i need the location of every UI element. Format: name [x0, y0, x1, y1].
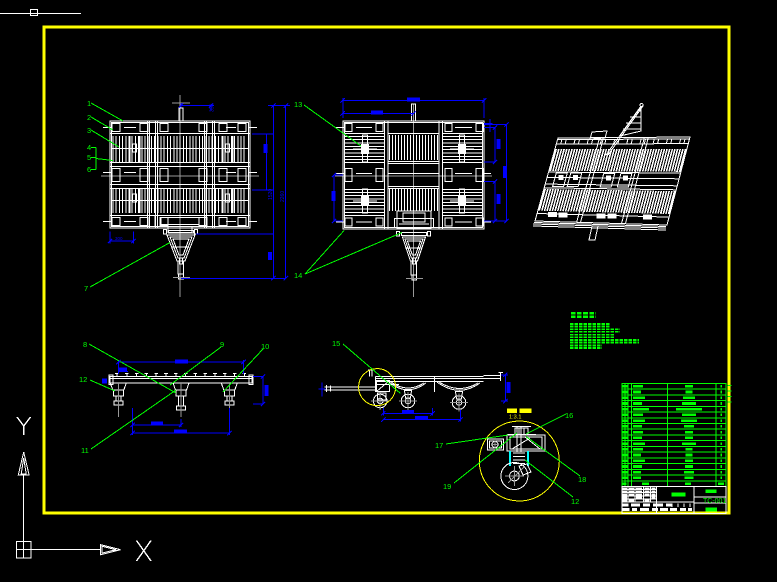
- svg-text:300: 300: [115, 236, 123, 241]
- svg-text:12: 12: [571, 497, 579, 506]
- svg-text:3: 3: [87, 126, 91, 135]
- svg-text:14: 14: [294, 271, 302, 280]
- svg-text:7: 7: [84, 284, 88, 293]
- svg-text:19: 19: [443, 482, 451, 491]
- svg-text:13: 13: [294, 100, 302, 109]
- svg-text:1:3.1: 1:3.1: [509, 414, 521, 420]
- svg-text:350: 350: [210, 103, 216, 112]
- svg-text:TC-001: TC-001: [703, 498, 726, 505]
- svg-text:5: 5: [87, 153, 91, 162]
- svg-text:1: 1: [87, 99, 91, 108]
- svg-text:12: 12: [79, 375, 87, 384]
- svg-text:8: 8: [83, 340, 87, 349]
- svg-text:6: 6: [87, 165, 91, 174]
- svg-text:11: 11: [81, 446, 89, 455]
- svg-text:15: 15: [332, 339, 340, 348]
- svg-text:17: 17: [435, 441, 443, 450]
- svg-text:18: 18: [578, 475, 586, 484]
- svg-text:4: 4: [87, 143, 91, 152]
- svg-text:1520: 1520: [268, 189, 274, 200]
- svg-text:2: 2: [87, 113, 91, 122]
- svg-text:2260: 2260: [280, 191, 286, 202]
- svg-text:16: 16: [565, 411, 573, 420]
